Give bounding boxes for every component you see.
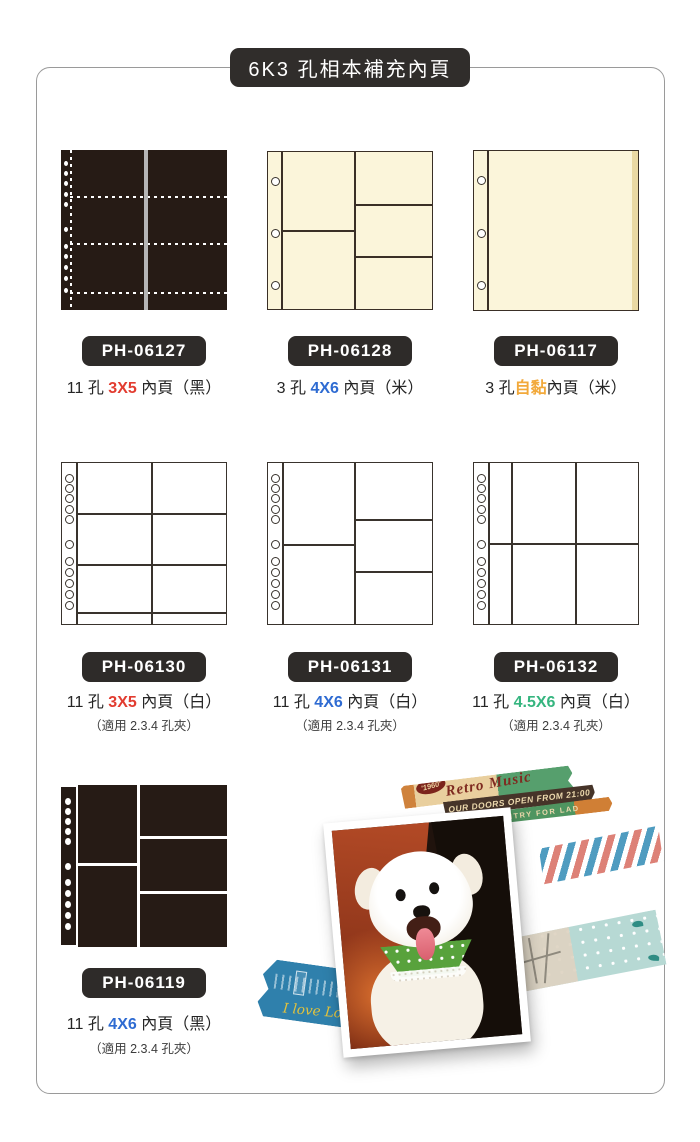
product-note: （適用 2.3.4 孔夾） — [451, 715, 661, 734]
size-label: 4X6 — [314, 694, 342, 711]
product-caption: 11 孔 4X6 內頁（黑） — [39, 1010, 249, 1034]
photo-collage: '1960' Retro Music OUR DOORS OPEN FROM 2… — [255, 770, 665, 1070]
size-label: 3X5 — [108, 380, 136, 397]
size-label: 4.5X6 — [514, 694, 556, 711]
product-code-badge: PH-06130 — [82, 652, 206, 682]
punch-holes — [61, 787, 73, 945]
punch-holes — [474, 151, 486, 310]
dog-photo — [323, 807, 531, 1057]
product-image-ph-06128 — [267, 151, 433, 310]
product-image-ph-06131 — [267, 462, 433, 625]
size-label: 4X6 — [108, 1016, 136, 1033]
product-note: （適用 2.3.4 孔夾） — [39, 715, 249, 734]
polka-dot-washi-tape — [509, 909, 667, 992]
product-image-ph-06132 — [473, 462, 639, 625]
product-code-badge: PH-06131 — [288, 652, 412, 682]
product-caption: 11 孔 3X5 內頁（黑） — [39, 374, 249, 398]
size-label: 4X6 — [310, 380, 338, 397]
size-label: 自黏 — [515, 380, 547, 397]
product-code-badge: PH-06117 — [494, 336, 618, 366]
product-note: （適用 2.3.4 孔夾） — [39, 1038, 249, 1057]
punch-holes — [62, 463, 74, 624]
product-image-ph-06117 — [473, 150, 639, 311]
bird-icon — [648, 955, 659, 961]
ticket-year-badge: '1960' — [414, 775, 447, 797]
size-label: 3X5 — [108, 694, 136, 711]
striped-washi-tape — [536, 824, 665, 887]
product-caption: 3 孔 4X6 內頁（米） — [245, 374, 455, 398]
product-caption: 11 孔 4X6 內頁（白） — [245, 688, 455, 712]
product-code-badge: PH-06132 — [494, 652, 618, 682]
product-image-ph-06130 — [61, 462, 227, 625]
product-caption: 3 孔自黏內頁（米） — [451, 374, 661, 398]
product-caption: 11 孔 4.5X6 內頁（白） — [451, 688, 661, 712]
page-title: 6K3 孔相本補充內頁 — [230, 48, 470, 87]
punch-holes — [474, 463, 486, 624]
product-caption: 11 孔 3X5 內頁（白） — [39, 688, 249, 712]
product-note: （適用 2.3.4 孔夾） — [245, 715, 455, 734]
product-image-ph-06127 — [61, 150, 227, 310]
punch-holes — [268, 463, 280, 624]
product-code-badge: PH-06127 — [82, 336, 206, 366]
product-code-badge: PH-06128 — [288, 336, 412, 366]
bird-icon — [632, 920, 644, 928]
punch-holes — [268, 152, 280, 309]
product-image-ph-06119 — [61, 785, 227, 947]
product-code-badge: PH-06119 — [82, 968, 206, 998]
